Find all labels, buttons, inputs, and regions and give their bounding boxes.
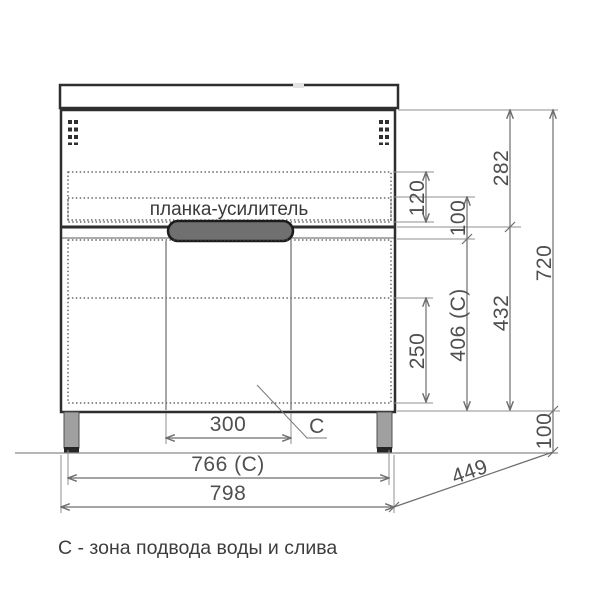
dim-449: 449 — [449, 455, 491, 489]
reinforcement-bar-label: планка-усилитель — [150, 199, 309, 220]
faucet-notch — [293, 83, 304, 88]
right-leg-foot — [377, 447, 392, 453]
dim-100-leg: 100 — [533, 413, 556, 450]
countertop — [60, 85, 398, 108]
right-leg — [377, 412, 392, 448]
left-leg-foot — [64, 447, 79, 453]
left-leg — [64, 412, 79, 448]
drawer-handle — [168, 221, 293, 241]
caption: С - зона подвода воды и слива — [58, 537, 337, 559]
dim-432: 432 — [490, 295, 513, 332]
dim-766c: 766 (C) — [191, 453, 265, 476]
cabinet-body — [61, 110, 395, 412]
dim-798: 798 — [210, 482, 247, 505]
dim-406c: 406 (C) — [447, 288, 470, 362]
dim-120: 120 — [406, 180, 429, 217]
zone-letter-label: C — [309, 415, 325, 438]
cabinet: планка-усилитель — [15, 83, 558, 453]
dim-300: 300 — [210, 413, 247, 436]
dim-720: 720 — [533, 245, 556, 282]
dim-100-upper: 100 — [447, 200, 470, 237]
dim-282: 282 — [490, 150, 513, 187]
vanity-dimension-drawing: планка-усилитель — [0, 0, 600, 600]
dim-250: 250 — [406, 333, 429, 370]
